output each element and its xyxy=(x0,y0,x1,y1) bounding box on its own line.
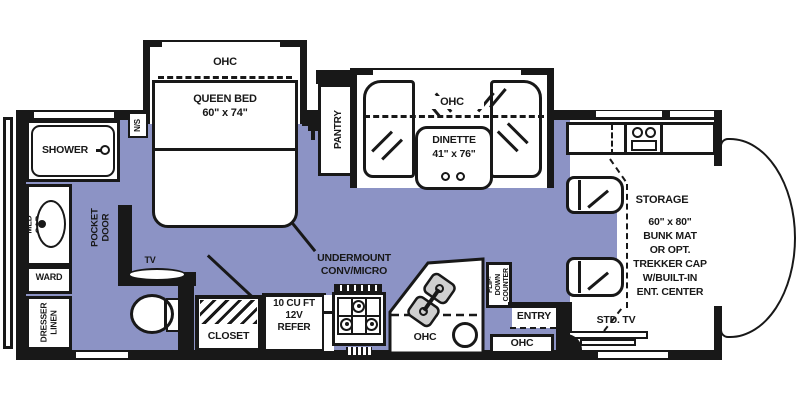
window xyxy=(598,352,668,358)
rv-floor-plan: OHC QUEEN BED 60" x 74" N/S PANTRY OHC D… xyxy=(0,0,800,400)
window xyxy=(34,112,114,118)
bunk-outline-dash xyxy=(611,124,613,155)
stove-vent xyxy=(334,284,382,292)
passenger-seat xyxy=(566,257,624,297)
appliance-icon xyxy=(645,127,656,138)
cabinet-divider xyxy=(660,124,663,153)
bedroom-tv-label: TV xyxy=(136,255,164,266)
std-tv-label: STD. TV xyxy=(582,314,650,327)
pocket-door-labelwrap: POCKET DOOR xyxy=(86,178,116,278)
pantry-label: PANTRY xyxy=(332,111,343,150)
bed-foot-line xyxy=(155,148,295,151)
toilet-seat-line xyxy=(164,300,167,328)
dinette-bench-left xyxy=(363,80,415,178)
toilet-icon xyxy=(130,294,174,334)
toilet-wall-right xyxy=(178,272,194,354)
ward-label: WARD xyxy=(26,272,72,283)
entry-dash xyxy=(510,327,556,329)
shower-label: SHOWER xyxy=(30,144,100,157)
rear-bumper xyxy=(3,117,13,349)
window xyxy=(670,111,714,117)
window xyxy=(373,70,521,76)
appliance-icon xyxy=(632,127,643,138)
faucet-icon xyxy=(38,220,46,228)
table-leg-icon xyxy=(456,172,465,181)
dinette-ohc-label: OHC xyxy=(420,96,484,109)
cab-floor-strip xyxy=(570,207,617,259)
shower-head-icon xyxy=(100,145,110,155)
front-cap xyxy=(720,138,796,338)
nightstand-label: N/S xyxy=(134,119,143,132)
window xyxy=(596,111,662,117)
nightstand: N/S xyxy=(128,112,148,138)
wall-hook-icon xyxy=(311,131,315,140)
appliance-icon xyxy=(631,140,657,151)
pocket-door-wall xyxy=(118,205,132,279)
tv-shelf-icon xyxy=(580,339,636,346)
bed-ohc-dash xyxy=(158,76,292,79)
bunk-label: 60" x 80" BUNK MAT OR OPT. TREKKER CAP W… xyxy=(622,216,718,300)
kitchen-ohc-label: OHC xyxy=(400,331,450,344)
wall-hook-icon xyxy=(308,124,318,131)
pocket-door-label: POCKET DOOR xyxy=(90,209,111,247)
shower-head-icon xyxy=(96,149,101,152)
bed-ohc-label: OHC xyxy=(160,56,290,69)
dresser-linen-label: DRESSER LINEN xyxy=(39,303,58,343)
queen-bed-label: QUEEN BED 60" x 74" xyxy=(160,92,290,121)
closet-label: CLOSET xyxy=(197,330,260,343)
refer-label: 10 CU FT 12V REFER xyxy=(264,298,324,333)
stove-lower-vent xyxy=(346,347,372,355)
window xyxy=(162,42,280,48)
tv-icon xyxy=(128,268,186,281)
dinette-label: DINETTE 41" x 76" xyxy=(417,134,491,161)
burner-icon xyxy=(340,318,353,331)
driver-seat xyxy=(566,176,624,214)
flip-down-label: FLIP-DOWN COUNTER xyxy=(487,268,510,301)
burner-icon xyxy=(365,318,378,331)
burner-icon xyxy=(352,300,365,313)
seat-back-line xyxy=(578,180,581,210)
entry-label: ENTRY xyxy=(512,310,556,323)
dresser-linen: DRESSER LINEN xyxy=(26,296,72,350)
dinette-ohc-dash xyxy=(364,115,544,118)
stove-grate-line xyxy=(338,315,380,317)
window xyxy=(76,352,128,358)
round-stool-icon xyxy=(452,322,478,348)
table-leg-icon xyxy=(441,172,450,181)
closet-hatch xyxy=(200,300,257,324)
entry-ohc-label: OHC xyxy=(490,337,554,350)
storage-label: STORAGE xyxy=(608,194,716,207)
cabinet-divider xyxy=(624,124,627,153)
tv-shelf-icon xyxy=(568,331,648,339)
seat-back-line xyxy=(578,261,581,293)
